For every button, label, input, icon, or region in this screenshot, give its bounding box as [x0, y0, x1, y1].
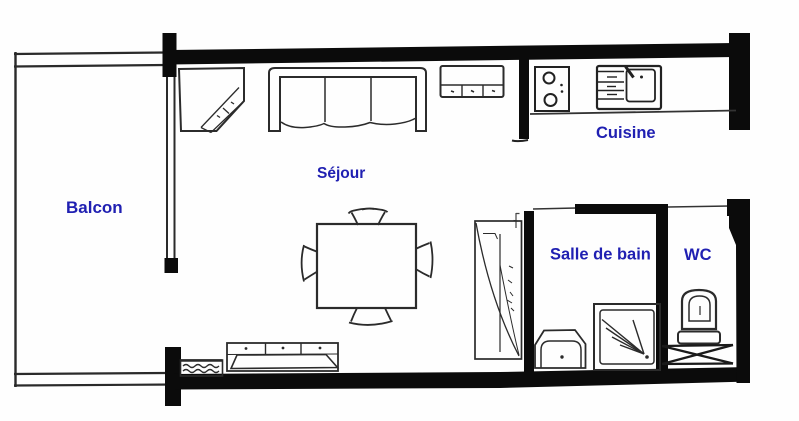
- svg-text:Cuisine: Cuisine: [596, 124, 656, 142]
- svg-text:Salle de bain: Salle de bain: [550, 246, 651, 264]
- svg-text:WC: WC: [684, 246, 712, 264]
- svg-text:Balcon: Balcon: [66, 198, 123, 217]
- svg-text:Séjour: Séjour: [317, 165, 365, 182]
